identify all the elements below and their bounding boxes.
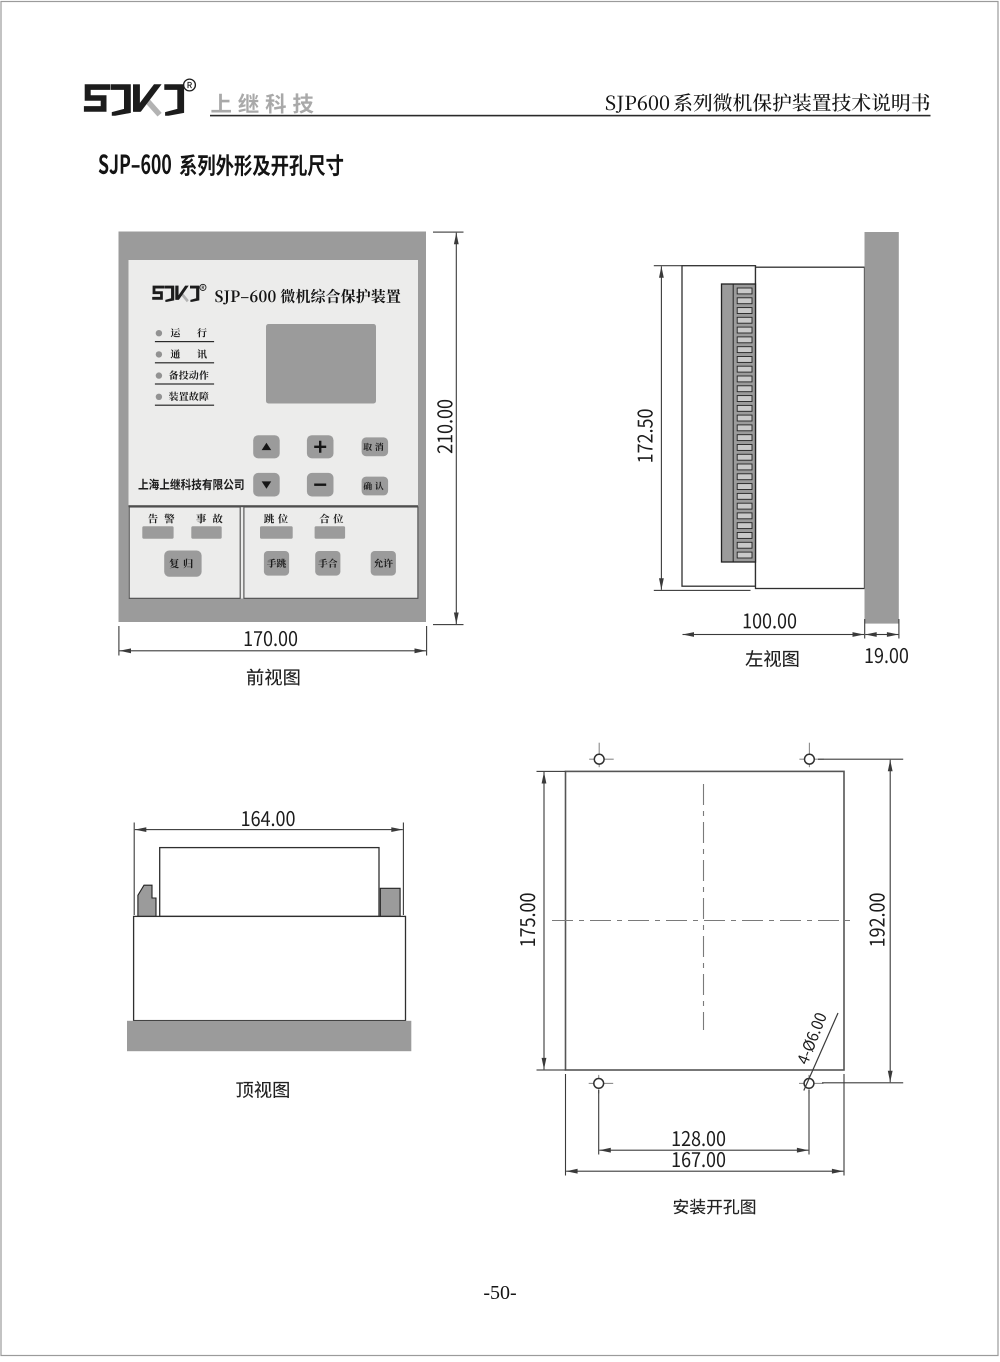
- svg-text:-50-: -50-: [483, 1282, 516, 1304]
